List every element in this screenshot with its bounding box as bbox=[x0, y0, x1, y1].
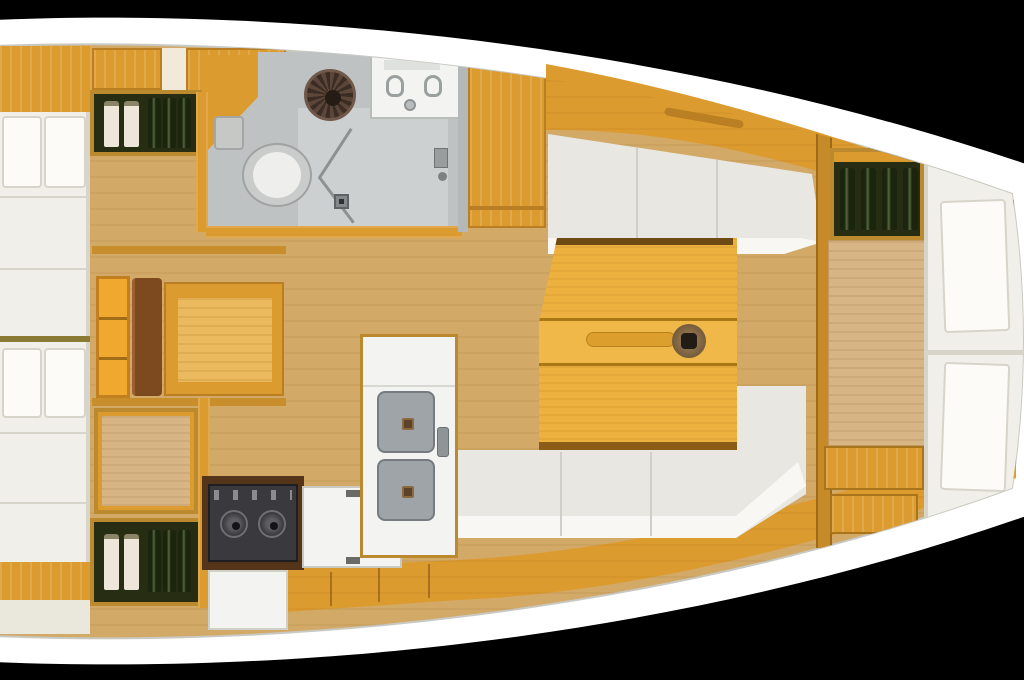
wine-bottle bbox=[178, 530, 191, 592]
vberth-sheet bbox=[940, 362, 1010, 492]
counter-seam bbox=[363, 385, 455, 387]
aft-hull-shelf-top bbox=[0, 46, 92, 112]
aft-cabinet-top-a bbox=[92, 48, 162, 90]
salon-table bbox=[539, 238, 737, 450]
sink-drain bbox=[402, 486, 414, 498]
deck-hatch bbox=[304, 69, 356, 121]
wine-bottle bbox=[882, 168, 897, 230]
shelf-line bbox=[99, 317, 127, 320]
mattress-seam bbox=[0, 432, 90, 434]
shelf-line bbox=[99, 357, 127, 360]
chart-table bbox=[164, 282, 284, 396]
cup-holder-center bbox=[681, 333, 697, 349]
galley-counter-sinks bbox=[360, 334, 458, 558]
settee-seam bbox=[560, 452, 562, 536]
shower-mixer bbox=[434, 148, 448, 168]
pillow bbox=[44, 116, 86, 188]
shower-floor-panel bbox=[298, 108, 448, 226]
mattress-seam bbox=[0, 502, 90, 504]
bottle-light bbox=[124, 101, 139, 147]
sink-drain bbox=[402, 418, 414, 430]
fridge-latch bbox=[346, 490, 360, 497]
bottle-rack-forward bbox=[830, 148, 924, 240]
aft-berth-bottom bbox=[0, 342, 90, 562]
burner-cap bbox=[270, 522, 278, 530]
nav-bulkhead-bottom bbox=[92, 398, 286, 406]
pillow bbox=[2, 116, 42, 188]
aft-cabinet-bottom bbox=[94, 408, 198, 514]
galley-sink bbox=[377, 459, 435, 521]
galley-slat-seam bbox=[378, 568, 380, 602]
bottle-light bbox=[104, 534, 119, 590]
bottle-locker-aft-top bbox=[90, 90, 202, 156]
nav-seat bbox=[132, 278, 162, 396]
cup-holder bbox=[672, 324, 706, 358]
galley-drawer-front bbox=[208, 570, 288, 630]
table-top-trim bbox=[543, 238, 733, 245]
stove-knobs bbox=[214, 490, 292, 500]
shower-head-icon bbox=[438, 172, 447, 181]
settee-end-cabinet bbox=[468, 66, 546, 228]
galley-faucet bbox=[437, 427, 449, 457]
head-bulkhead-column bbox=[196, 92, 210, 232]
wine-bottle bbox=[861, 168, 876, 230]
stove bbox=[208, 484, 298, 562]
settee-seam bbox=[650, 452, 652, 536]
mattress-seam bbox=[0, 268, 90, 270]
table-fold-seam bbox=[539, 363, 737, 366]
bottle-light bbox=[104, 101, 119, 147]
bottle-light bbox=[124, 534, 139, 590]
berth-edge-trim bbox=[86, 112, 90, 336]
head-sill-trim bbox=[206, 226, 462, 238]
wine-bottle bbox=[163, 530, 176, 592]
fridge-latch bbox=[346, 557, 360, 564]
faucet-icon bbox=[386, 75, 404, 97]
nav-bulkhead-top bbox=[92, 246, 286, 254]
mattress-seam bbox=[0, 196, 90, 198]
wine-bottle bbox=[903, 168, 918, 230]
hatch-center bbox=[325, 90, 341, 106]
cabinet-shelf-line bbox=[470, 206, 544, 210]
burner-cap bbox=[232, 522, 240, 530]
boat-floorplan-canvas bbox=[0, 0, 1024, 680]
galley-slat-seam bbox=[330, 572, 332, 606]
wine-bottle bbox=[163, 98, 176, 148]
pillow bbox=[2, 348, 42, 418]
nav-shelf-unit bbox=[96, 276, 130, 398]
settee-seam bbox=[716, 160, 718, 250]
bottle-locker-aft-bottom bbox=[90, 518, 202, 606]
burner-icon bbox=[220, 510, 248, 538]
settee-seam bbox=[636, 148, 638, 248]
vberth-sheet bbox=[940, 199, 1011, 333]
toilet-lid bbox=[253, 152, 301, 198]
aft-cabinet-light-panel bbox=[162, 48, 186, 92]
galley-slat-seam bbox=[428, 564, 430, 598]
table-handle-groove bbox=[586, 332, 676, 347]
cabinet-door bbox=[102, 416, 190, 506]
pillow bbox=[44, 348, 86, 418]
wine-bottle bbox=[178, 98, 191, 148]
wine-bottle bbox=[148, 98, 161, 148]
table-bottom-trim bbox=[539, 442, 737, 450]
vberth-step-drawer bbox=[824, 446, 924, 490]
toilet-bowl bbox=[242, 143, 312, 207]
wine-bottle bbox=[148, 530, 161, 592]
burner-icon bbox=[258, 510, 286, 538]
head-aft-wall bbox=[458, 58, 468, 232]
sink-drain-icon bbox=[404, 99, 416, 111]
toilet-tank bbox=[214, 116, 244, 150]
aft-hull-shelf-bottom bbox=[0, 562, 90, 600]
aft-berth-top bbox=[0, 112, 90, 336]
drain-dot bbox=[339, 199, 344, 204]
vberth-infill-panel bbox=[828, 240, 926, 446]
galley-sink bbox=[377, 391, 435, 453]
chart-table-top bbox=[178, 298, 272, 382]
faucet-icon bbox=[424, 75, 442, 97]
wine-bottle bbox=[840, 168, 855, 230]
shower-drain bbox=[334, 194, 349, 209]
aft-shelf-light bbox=[0, 600, 90, 634]
